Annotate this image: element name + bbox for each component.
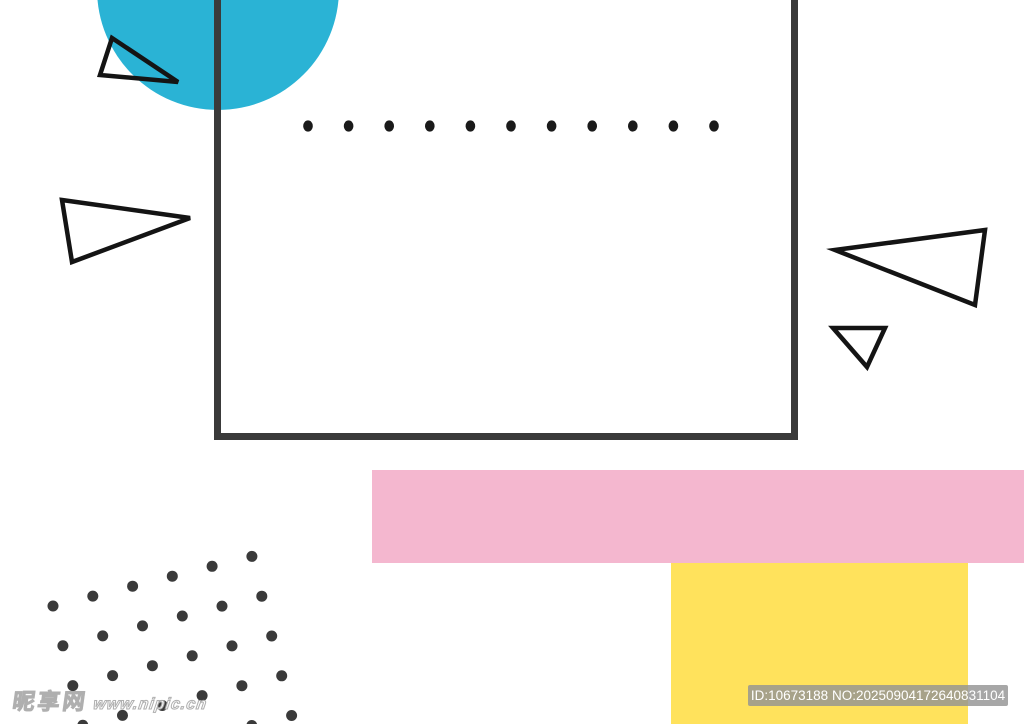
- grid-dot: [167, 571, 178, 582]
- grid-dot: [127, 581, 138, 592]
- pink-rectangle: [372, 470, 1024, 563]
- grid-dot: [107, 670, 118, 681]
- grid-dot: [236, 680, 247, 691]
- dotted-row-dot: [506, 120, 516, 131]
- grid-dot: [246, 551, 257, 562]
- watermark-site-name: 昵享网: [11, 689, 90, 714]
- grid-dot: [48, 601, 59, 612]
- grid-dot: [147, 660, 158, 671]
- dotted-row-dot: [628, 120, 638, 131]
- memphis-design-canvas: 昵享网www.nipic.cn ID:10673188 NO:202509041…: [0, 0, 1024, 724]
- dotted-row-dot: [384, 120, 394, 131]
- dotted-row-dot: [425, 120, 435, 131]
- dotted-row-dot: [709, 120, 719, 131]
- grid-dot: [266, 631, 277, 642]
- grid-dot: [97, 630, 108, 641]
- triangle-outline-right-small: [833, 328, 885, 367]
- dotted-row-dot: [344, 120, 354, 131]
- grid-dot: [276, 670, 287, 681]
- triangle-outline-right-large: [835, 230, 985, 305]
- grid-dot: [256, 591, 267, 602]
- dotted-row-dot: [303, 120, 313, 131]
- grid-dot: [137, 620, 148, 631]
- site-watermark: 昵享网www.nipic.cn: [11, 684, 210, 716]
- triangle-outline-mid-left: [62, 200, 190, 262]
- dotted-row-dot: [547, 120, 557, 131]
- grid-dot: [286, 710, 297, 721]
- grid-dot: [217, 601, 228, 612]
- dotted-row-dot: [669, 120, 679, 131]
- grid-dot: [207, 561, 218, 572]
- dotted-row-dot: [466, 120, 476, 131]
- grid-dot: [187, 650, 198, 661]
- grid-dot: [227, 640, 238, 651]
- image-id-text: ID:10673188 NO:20250904172640831104: [751, 688, 1005, 703]
- shapes-layer: [0, 0, 1024, 724]
- watermark-site-url: www.nipic.cn: [92, 696, 208, 713]
- image-id-badge: ID:10673188 NO:20250904172640831104: [748, 685, 1008, 706]
- grid-dot: [246, 720, 257, 724]
- grid-dot: [177, 611, 188, 622]
- grid-dot: [77, 720, 88, 724]
- grid-dot: [57, 640, 68, 651]
- dotted-row-dot: [587, 120, 597, 131]
- grid-dot: [87, 591, 98, 602]
